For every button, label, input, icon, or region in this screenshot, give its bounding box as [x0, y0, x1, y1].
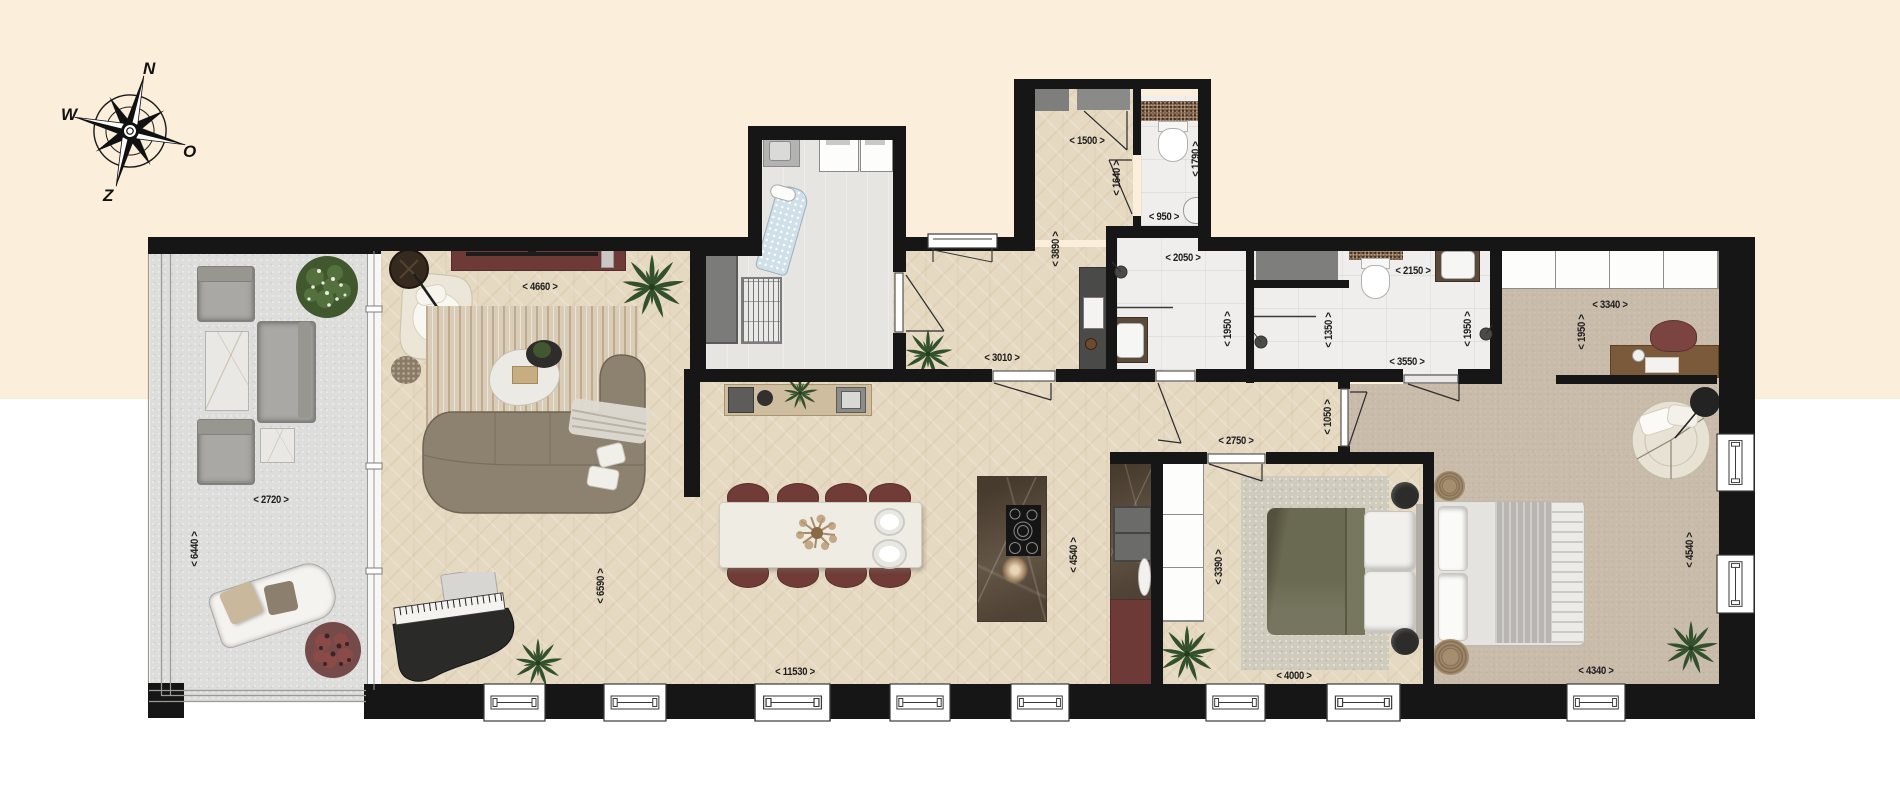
svg-text:W: W	[61, 105, 79, 124]
svg-text:Z: Z	[102, 186, 114, 205]
svg-text:N: N	[143, 59, 156, 78]
svg-text:O: O	[183, 142, 196, 161]
